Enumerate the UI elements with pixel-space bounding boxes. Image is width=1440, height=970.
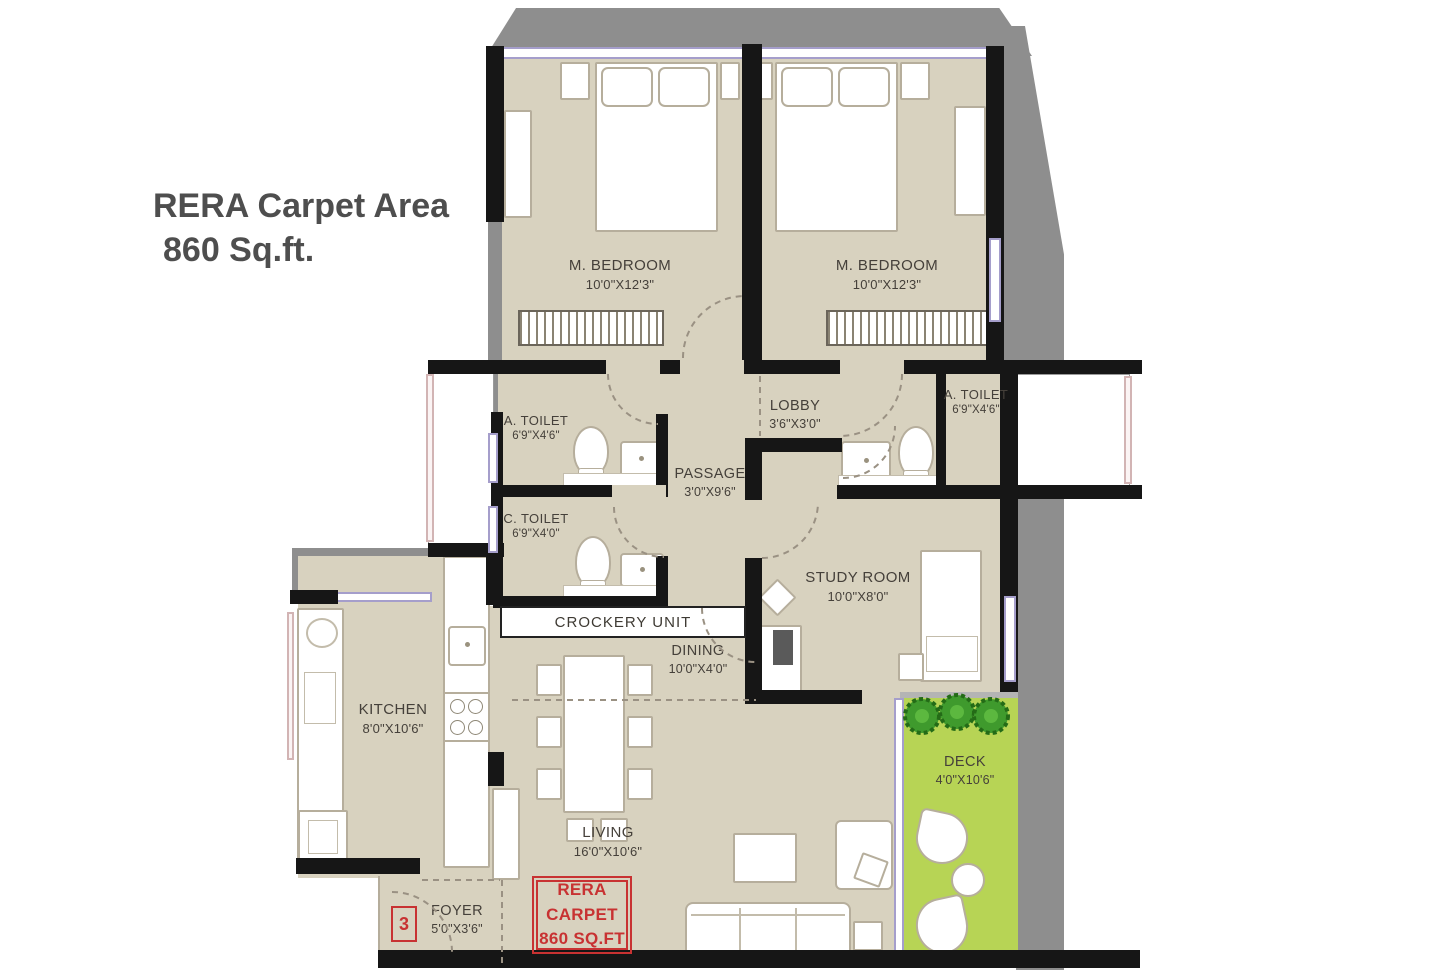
wc-icon <box>898 426 934 478</box>
room-label-study-room: STUDY ROOM 10'0"X8'0" <box>788 568 928 605</box>
wall-segment <box>837 485 1142 499</box>
duct-window <box>426 374 434 542</box>
wall-segment <box>488 752 504 786</box>
side-table-icon <box>853 921 883 951</box>
room-label-deck: DECK 4'0"X10'6" <box>918 753 1012 789</box>
unit-number: 3 <box>393 908 415 940</box>
stamp-line-2: CARPET <box>538 903 626 928</box>
kitchen-side-window <box>287 612 294 760</box>
rera-carpet-stamp-inner: RERA CARPET 860 SQ.FT <box>536 880 628 950</box>
duct-window <box>1124 376 1132 484</box>
room-label-c-toilet: C. TOILET 6'9"X4'0" <box>492 510 580 542</box>
duct-left <box>428 372 494 544</box>
room-label-a-toilet-2: A. TOILET 6'9"X4'6" <box>930 386 1022 418</box>
wall-segment <box>296 858 420 874</box>
wall-segment <box>745 558 762 704</box>
room-label-living: LIVING 16'0"X10'6" <box>546 823 670 860</box>
dining-chair-icon <box>536 768 562 800</box>
stamp-line-3: 860 SQ.FT <box>538 927 626 952</box>
wall-segment <box>290 590 338 604</box>
crockery-unit: CROCKERY UNIT <box>500 606 746 638</box>
title-line-1: RERA Carpet Area <box>153 184 449 228</box>
sofa-seam <box>691 914 845 916</box>
room-label-lobby: LOBBY 3'6"X3'0" <box>752 397 838 433</box>
dining-chair-icon <box>627 716 653 748</box>
floor-plan: RERA Carpet Area 860 Sq.ft. <box>0 0 1440 970</box>
wall-segment <box>656 556 668 608</box>
side-table-icon <box>898 653 924 681</box>
kitchen-unit <box>304 672 336 724</box>
computer-icon <box>773 630 793 665</box>
door-opening <box>680 360 744 374</box>
unit-number-box: 3 <box>391 906 417 942</box>
room-label-a-toilet-1: A. TOILET 6'9"X4'6" <box>492 412 580 444</box>
dining-chair-icon <box>536 664 562 696</box>
room-label-foyer: FOYER 5'0"X3'6" <box>409 902 505 938</box>
door-opening <box>606 360 660 374</box>
dining-chair-icon <box>627 768 653 800</box>
nightstand-icon <box>720 62 740 100</box>
nightstand-icon <box>560 62 590 100</box>
window <box>334 592 432 602</box>
pillow-icon <box>601 67 653 107</box>
window <box>989 238 1001 322</box>
room-label-passage: PASSAGE 3'0"X9'6" <box>662 465 758 501</box>
wall-segment <box>742 44 762 374</box>
chajja-band-right-upper <box>1004 26 1064 372</box>
wall-segment <box>486 46 504 222</box>
dresser-icon <box>518 310 664 346</box>
rera-carpet-stamp: RERA CARPET 860 SQ.FT <box>532 876 632 954</box>
wall-segment <box>745 690 862 704</box>
coffee-table-icon <box>733 833 797 883</box>
door-opening <box>840 360 904 374</box>
kitchen-sink-icon <box>448 626 486 666</box>
dining-table-icon <box>563 655 625 813</box>
wall-segment <box>986 46 1004 374</box>
door-opening <box>612 485 666 497</box>
window <box>1004 596 1016 682</box>
wall-segment <box>428 360 1142 374</box>
room-label-m-bedroom-1: M. BEDROOM 10'0"X12'3" <box>545 256 695 293</box>
hob-burner <box>468 699 483 714</box>
chajja-band-right-lower <box>1016 497 1064 970</box>
room-label-dining: DINING 10'0"X4'0" <box>646 642 750 678</box>
wardrobe-icon <box>954 106 986 216</box>
crockery-unit-label: CROCKERY UNIT <box>555 614 692 631</box>
study-bed-pillow <box>926 636 978 672</box>
stamp-line-1: RERA <box>538 878 626 903</box>
pillow-icon <box>838 67 890 107</box>
room-label-kitchen: KITCHEN 8'0"X10'6" <box>333 700 453 737</box>
tv-unit-icon <box>492 788 520 880</box>
room-label-m-bedroom-2: M. BEDROOM 10'0"X12'3" <box>812 256 962 293</box>
wall-segment <box>762 438 842 452</box>
fridge-inner <box>308 820 338 854</box>
wardrobe-icon <box>504 110 532 218</box>
deck-sliding-window <box>894 698 904 956</box>
dining-chair-icon <box>536 716 562 748</box>
nightstand-icon <box>900 62 930 100</box>
wc-icon <box>575 536 611 588</box>
kitchen-sink-icon <box>306 618 338 648</box>
title-line-2: 860 Sq.ft. <box>153 228 449 272</box>
page-title: RERA Carpet Area 860 Sq.ft. <box>153 184 449 272</box>
wall-segment <box>378 950 1140 968</box>
hob-burner <box>468 720 483 735</box>
pillow-icon <box>781 67 833 107</box>
duct-right <box>1016 374 1130 486</box>
deck-table-icon <box>951 863 985 897</box>
pillow-icon <box>658 67 710 107</box>
dresser-icon <box>826 310 990 346</box>
